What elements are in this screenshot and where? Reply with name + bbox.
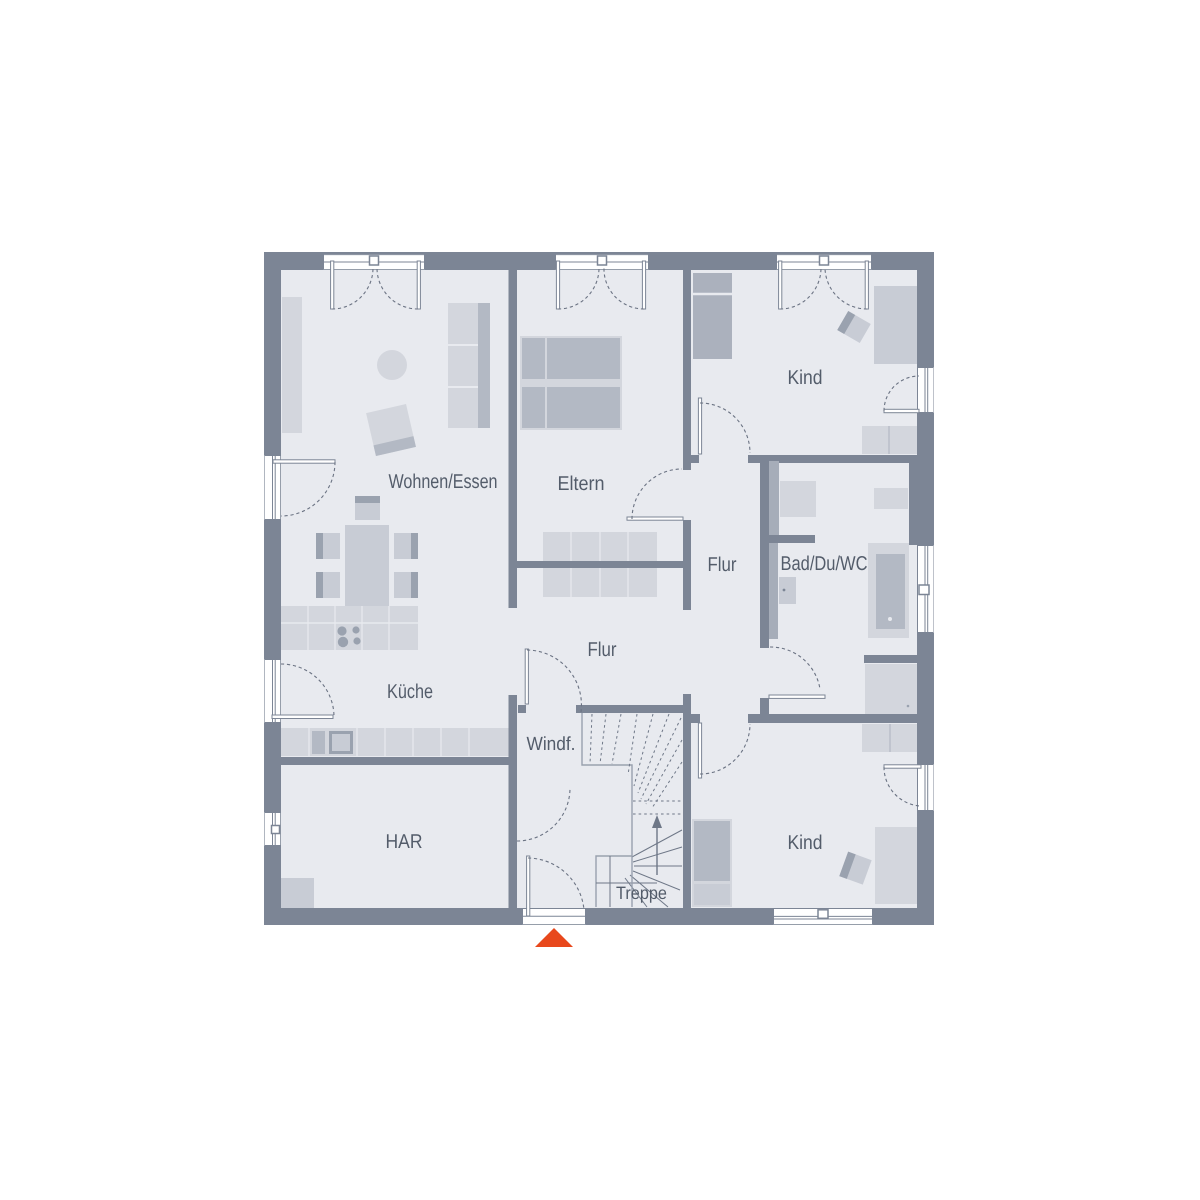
svg-text:Kind: Kind	[788, 367, 823, 389]
svg-text:Windf.: Windf.	[527, 734, 576, 755]
svg-text:Kind: Kind	[788, 832, 823, 854]
svg-text:Flur: Flur	[588, 639, 617, 661]
svg-text:Bad/Du/WC: Bad/Du/WC	[781, 553, 868, 575]
svg-text:Treppe: Treppe	[616, 883, 667, 903]
svg-text:HAR: HAR	[386, 831, 423, 853]
svg-text:Wohnen/Essen: Wohnen/Essen	[389, 471, 498, 493]
svg-text:Küche: Küche	[387, 681, 433, 703]
svg-text:Flur: Flur	[708, 554, 737, 576]
svg-text:Eltern: Eltern	[558, 473, 605, 495]
